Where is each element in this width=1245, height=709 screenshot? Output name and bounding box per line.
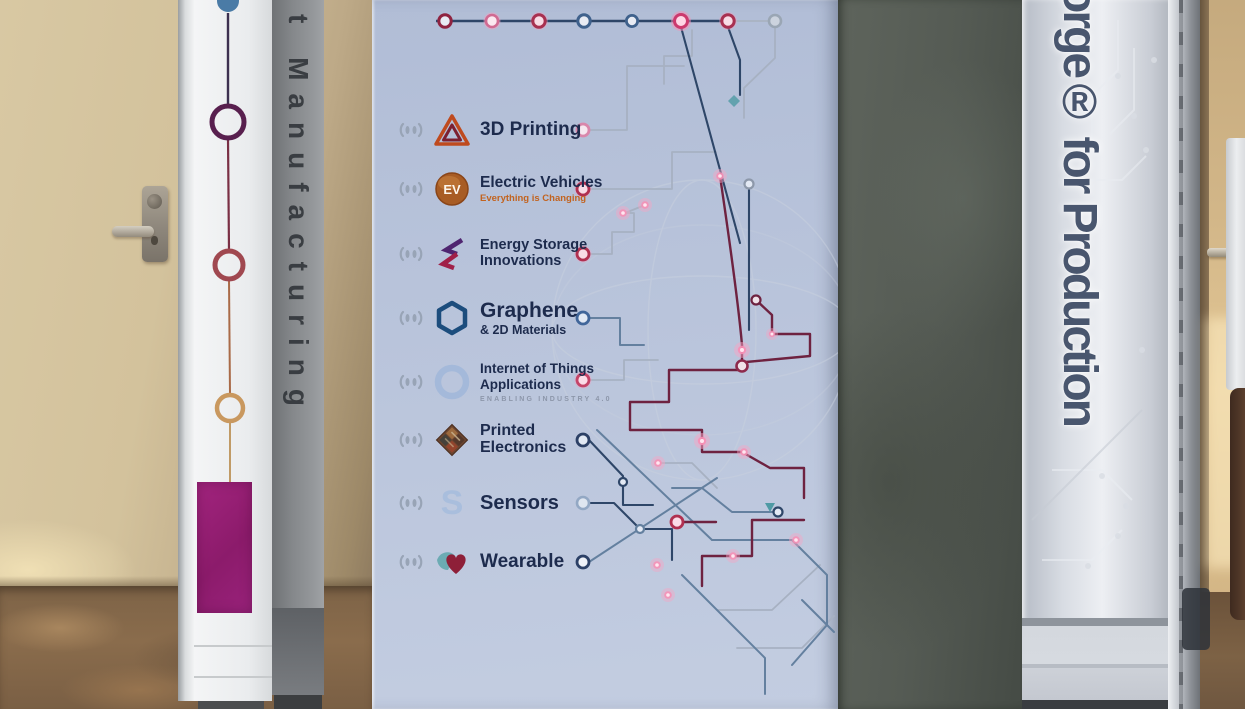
topic-row-printed-electronics: Printed Electronics [372, 408, 702, 472]
signal-waves-icon [398, 180, 424, 198]
topic-label: Printed [480, 423, 566, 440]
left-graphic-pillar: t Manufacturing [178, 0, 324, 709]
topic-label: Graphene [480, 300, 578, 321]
svg-text:EV: EV [443, 182, 461, 197]
left-door-handle-lever [112, 226, 154, 237]
topic-label: 3D Printing [480, 119, 581, 141]
signal-waves-icon [398, 553, 424, 571]
left-pillar-foot [198, 701, 264, 709]
orange-ring-node [217, 395, 243, 421]
left-pillar-side-base [272, 608, 324, 695]
topic-row-energy-storage: Energy Storage Innovations [372, 222, 702, 286]
topic-subtitle: Everything is Changing [480, 193, 602, 204]
pillar-groove [194, 676, 272, 678]
signal-waves-icon [398, 121, 424, 139]
right-pillar-base [1022, 618, 1168, 709]
red-ring-node [215, 251, 243, 279]
left-pillar-aluminum-edge [178, 0, 194, 701]
left-pillar-vertical-text: t Manufacturing [282, 14, 314, 419]
floor-shadow-object [1182, 588, 1210, 650]
topic-tagline: ENABLING INDUSTRY 4.0 [480, 396, 612, 403]
left-pillar-circuit-line-graphic [194, 0, 272, 482]
topic-label: Internet of Things [480, 361, 612, 376]
left-door-lock-knob [147, 194, 162, 209]
graphene-hexagon-icon [431, 300, 473, 336]
topic-row-iot: Internet of Things Applications ENABLING… [372, 350, 702, 414]
signal-waves-icon [398, 373, 424, 391]
right-graphic-pillar: orge® for Production [1022, 0, 1200, 709]
wearable-heart-icon [431, 547, 473, 577]
booth-photo-scene: t Manufacturing [0, 0, 1245, 709]
topic-label: Sensors [480, 492, 559, 515]
iot-ring-icon [431, 362, 473, 402]
ev-badge-icon: EV [431, 172, 473, 206]
svg-text:S: S [441, 484, 464, 522]
right-pillar-vertical-text: orge® for Production [1052, 0, 1107, 425]
topic-row-sensors: S Sensors [372, 471, 702, 535]
left-pillar-side-foot [274, 695, 322, 709]
signal-waves-icon [398, 431, 424, 449]
right-pillar-front-panel: orge® for Production [1022, 0, 1168, 709]
topic-label: Wearable [480, 551, 564, 573]
topic-label-line2: Applications [480, 377, 612, 392]
topic-row-graphene: Graphene & 2D Materials [372, 286, 702, 350]
left-pillar-side-panel: t Manufacturing [272, 0, 324, 695]
topic-label: Energy Storage [480, 238, 587, 254]
left-door-keyhole [151, 236, 158, 245]
topic-row-3d-printing: 3D Printing [372, 98, 702, 162]
printed-circuit-diamond-icon [431, 421, 473, 459]
person-arm [1230, 388, 1245, 620]
concrete-pillar [838, 0, 1022, 709]
topic-label-line2: Innovations [480, 254, 587, 270]
left-pillar-front-panel [194, 0, 272, 701]
signal-waves-icon [398, 309, 424, 327]
energy-zigzag-icon [431, 236, 473, 272]
blue-node [217, 0, 239, 12]
pillar-groove [194, 645, 272, 647]
magenta-panel [197, 482, 252, 613]
topic-row-electric-vehicles: EV Electric Vehicles Everything is Chang… [372, 157, 702, 221]
topic-label-line2: Electronics [480, 440, 566, 457]
signal-waves-icon [398, 245, 424, 263]
sensors-s-icon: S [431, 483, 473, 523]
purple-ring-node [212, 106, 244, 138]
person-shirt [1226, 138, 1245, 390]
3d-printing-triangle-icon [431, 114, 473, 146]
center-topics-banner: 3D Printing EV Electric Vehicles Everyth… [372, 0, 838, 709]
topic-label: Electric Vehicles [480, 174, 602, 192]
topic-row-wearable: Wearable [372, 530, 702, 594]
topic-label-line2: & 2D Materials [480, 323, 578, 337]
signal-waves-icon [398, 494, 424, 512]
